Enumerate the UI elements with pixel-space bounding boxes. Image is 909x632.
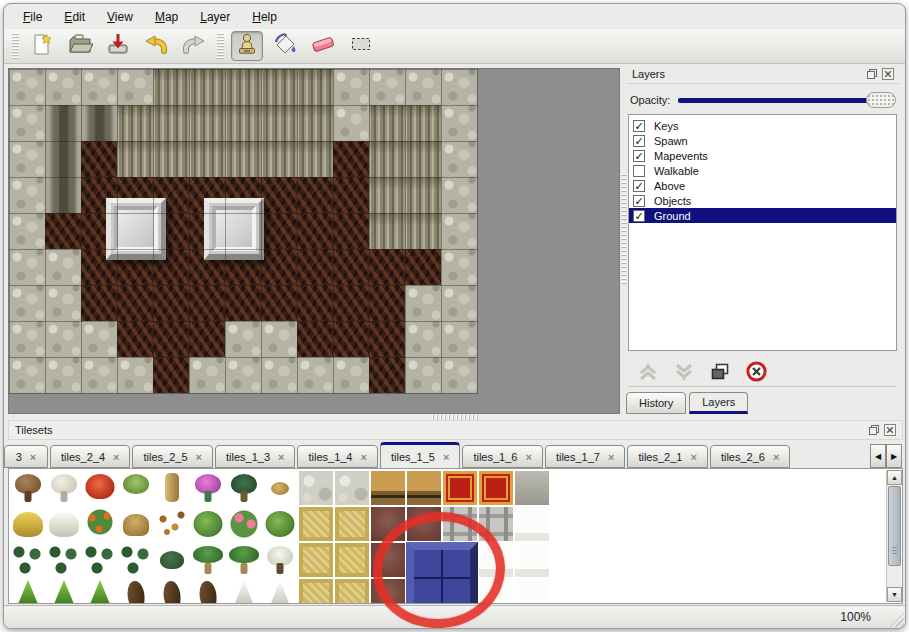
palette-tile-snow-tree[interactable] [226, 578, 262, 604]
toolbar-new-button[interactable] [26, 31, 58, 61]
map-tile-rock [441, 357, 477, 393]
layer-name: Objects [654, 195, 691, 207]
palette-tile-red-carpet[interactable] [478, 470, 514, 506]
map-tile-rock [45, 69, 81, 105]
palette-tile-tan-carpet[interactable] [334, 578, 370, 604]
map-tile-wall-face [297, 141, 333, 177]
map-tile-wall-face [189, 105, 225, 141]
tileset-tab-label: tiles_1_5 [391, 451, 435, 463]
map-tile-floor [81, 141, 117, 177]
layers-panel-titlebar: Layers [626, 64, 900, 84]
palette-tile-stone-floor[interactable] [298, 470, 334, 506]
tileset-tab-label: tiles_1_6 [473, 451, 517, 463]
map-tile-floor [297, 177, 333, 213]
layer-checkbox[interactable]: ✓ [633, 120, 645, 132]
layer-row-walkable[interactable]: Walkable [629, 163, 896, 178]
layer-name: Above [654, 180, 685, 192]
map-tile-wall-face [369, 141, 405, 177]
palette-tile-tan-carpet[interactable] [334, 542, 370, 578]
layer-name: Keys [654, 120, 678, 132]
palette-tile-metal-frame[interactable] [478, 506, 514, 542]
close-tab-icon[interactable]: × [525, 451, 531, 463]
scroll-left-icon[interactable]: ◀ [870, 444, 886, 468]
toolbar-redo-button[interactable] [178, 31, 210, 61]
map-tile-wall-face [261, 141, 297, 177]
map-tile-floor [333, 321, 369, 357]
map-tile-floor [225, 285, 261, 321]
tileset-tab-label: tiles_1_7 [556, 451, 600, 463]
palette-selected-tile[interactable] [406, 542, 478, 604]
fill-bucket-icon [272, 31, 298, 61]
palette-tile-white-tree[interactable] [46, 470, 82, 506]
toolbar [4, 29, 905, 64]
layers-panel: Layers Opacity: ✓Keys✓Spawn✓MapeventsWal… [626, 64, 900, 416]
palette-tile-lily-pad[interactable] [262, 506, 298, 542]
map-tile-floor [261, 213, 297, 249]
eraser-icon [309, 32, 337, 60]
palette-tile-leather[interactable] [370, 578, 406, 604]
palette-tile-stone-floor[interactable] [334, 470, 370, 506]
layer-buttons-row [628, 357, 897, 387]
map-tile-rock [117, 69, 153, 105]
tile-palette[interactable]: ▲ ▼ [8, 468, 903, 604]
layer-row-spawn[interactable]: ✓Spawn [629, 133, 896, 148]
opacity-slider-track[interactable] [678, 98, 894, 103]
map-tile-wall-face [405, 213, 441, 249]
menu-layer[interactable]: Layer [191, 7, 239, 27]
toolbar-undo-button[interactable] [140, 31, 172, 61]
tileset-tab-label: tiles_2_6 [721, 451, 765, 463]
map-tile-rock [9, 357, 45, 393]
palette-tile-leather[interactable] [406, 506, 442, 542]
toolbar-open-button[interactable] [64, 31, 96, 61]
map-tile-wall-face [225, 69, 261, 105]
map-pedestal-tile [106, 198, 166, 260]
map-pedestal-tile [204, 198, 264, 260]
map-tile-floor [81, 285, 117, 321]
palette-tile-snow-mound[interactable] [46, 506, 82, 542]
close-tab-icon[interactable]: × [361, 451, 367, 463]
map-tile-rock [441, 321, 477, 357]
palette-tile-white-tile[interactable] [514, 578, 550, 604]
redo-icon [181, 32, 207, 60]
map-tile-wall-face [369, 105, 405, 141]
menu-edit[interactable]: Edit [55, 7, 94, 27]
palette-tile-snow-tree[interactable] [262, 578, 298, 604]
close-tab-icon[interactable]: × [113, 451, 119, 463]
move-layer-down-button [672, 360, 696, 384]
palette-tile-red-flower[interactable] [82, 470, 118, 506]
menu-help[interactable]: Help [243, 7, 286, 27]
scrollbar-thumb[interactable] [888, 486, 901, 566]
map-tile-wall-face [225, 105, 261, 141]
close-panel-icon[interactable] [884, 424, 896, 436]
map-tile-floor [369, 249, 405, 285]
layer-list: ✓Keys✓Spawn✓MapeventsWalkable✓Above✓Obje… [628, 114, 897, 351]
map-tile-rock [45, 249, 81, 285]
palette-tile-tan-carpet[interactable] [298, 542, 334, 578]
map-tile-floor [153, 285, 189, 321]
tileset-tab-bar: 3×tiles_2_4×tiles_2_5×tiles_1_3×tiles_1_… [4, 442, 905, 468]
undo-icon [143, 32, 169, 60]
move-layer-up-button [636, 360, 660, 384]
tileset-tab-tiles_1_5[interactable]: tiles_1_5× [380, 442, 460, 468]
palette-tile-stump[interactable] [118, 470, 154, 506]
map-tile-floor [261, 177, 297, 213]
menu-view[interactable]: View [98, 7, 142, 27]
close-tab-icon[interactable]: × [30, 451, 36, 463]
map-tile-crevice [45, 105, 81, 141]
map-tile-rock [261, 357, 297, 393]
map-tile-floor [369, 285, 405, 321]
palette-tile-white-tile[interactable] [514, 506, 550, 542]
stamp-tool-icon [235, 31, 259, 61]
map-tile-rock [9, 141, 45, 177]
palette-tile-white-tile[interactable] [478, 542, 514, 578]
map-tile-rock [405, 285, 441, 321]
map-tile-floor [297, 249, 333, 285]
tab-layers[interactable]: Layers [689, 392, 748, 414]
scroll-up-icon[interactable]: ▲ [887, 470, 902, 485]
map-tile-crevice [45, 177, 81, 213]
map-tile-floor [333, 249, 369, 285]
map-tile-rock [81, 321, 117, 357]
map-tile-floor [117, 321, 153, 357]
map-tile-wall-face [297, 105, 333, 141]
scroll-down-icon[interactable]: ▼ [887, 587, 902, 602]
tileset-tab-tiles_2_1[interactable]: tiles_2_1× [627, 445, 707, 468]
toolbar-eraser-button[interactable] [307, 31, 339, 61]
map-tile-wall-face [297, 69, 333, 105]
close-tab-icon[interactable]: × [690, 451, 696, 463]
tab-scroll-arrows: ◀▶ [870, 444, 902, 468]
close-tab-icon[interactable]: × [196, 451, 202, 463]
duplicate-layer-button[interactable] [708, 360, 732, 384]
palette-tile-metal-frame[interactable] [442, 506, 478, 542]
layers-panel-title: Layers [632, 68, 665, 80]
map-tile-rock [405, 357, 441, 393]
map-tile-rock [405, 321, 441, 357]
tileset-tab-tiles_1_6[interactable]: tiles_1_6× [462, 445, 542, 468]
opacity-slider[interactable] [678, 92, 896, 108]
toolbar-stamp-button[interactable] [231, 31, 263, 61]
layer-row-ground[interactable]: ✓Ground [629, 208, 896, 223]
palette-tile-pink-bush[interactable] [190, 470, 226, 506]
palette-tile-bushes[interactable] [46, 542, 82, 578]
map-canvas[interactable] [8, 68, 620, 414]
map-tile-wall-face [153, 105, 189, 141]
map-tile-rock [9, 177, 45, 213]
tileset-tab-label: tiles_2_4 [61, 451, 105, 463]
tileset-tab-3[interactable]: 3× [4, 445, 48, 468]
map-tile-wall-face [369, 213, 405, 249]
palette-tile-twisted-trunk[interactable] [118, 578, 154, 604]
map-tile-rock [45, 357, 81, 393]
layer-row-objects[interactable]: ✓Objects [629, 193, 896, 208]
map-tile-rock [333, 69, 369, 105]
status-bar: 100% [4, 605, 905, 628]
palette-tile-red-carpet[interactable] [442, 470, 478, 506]
palette-tile-gray-stone[interactable] [514, 470, 550, 506]
map-tile-floor [333, 177, 369, 213]
map-tile-wall-face [405, 105, 441, 141]
opacity-row: Opacity: [630, 91, 896, 109]
map-tile-rock [117, 357, 153, 393]
toolbar-fill-button[interactable] [269, 31, 301, 61]
toolbar-grip[interactable] [217, 33, 224, 59]
map-tile-rock [9, 249, 45, 285]
map-tile-floor [297, 213, 333, 249]
map-tile-rock [9, 105, 45, 141]
map-tile-rock [441, 105, 477, 141]
app-window: FileEditViewMapLayerHelp Layers Opacity:… [3, 3, 906, 629]
palette-tile-hay-mound[interactable] [10, 506, 46, 542]
map-tile-rock [441, 177, 477, 213]
map-tile-floor [405, 249, 441, 285]
map-tile-floor [297, 321, 333, 357]
palette-tile-lily-pad[interactable] [190, 506, 226, 542]
palette-tile-tan-carpet[interactable] [334, 506, 370, 542]
palette-tile-twisted-trunk[interactable] [154, 578, 190, 604]
save-icon [106, 32, 130, 60]
close-tab-icon[interactable]: × [443, 451, 449, 463]
map-tile-rock [441, 141, 477, 177]
scroll-right-icon[interactable]: ▶ [886, 444, 902, 468]
tileset-tab-tiles_1_4[interactable]: tiles_1_4× [297, 445, 377, 468]
toolbar-select-button[interactable] [345, 31, 377, 61]
toolbar-grip[interactable] [12, 33, 19, 59]
layer-name: Spawn [654, 135, 688, 147]
map-tile-floor [153, 321, 189, 357]
palette-tile-leather[interactable] [370, 542, 406, 578]
map-tile-wall-face [189, 69, 225, 105]
tileset-tab-label: tiles_2_5 [143, 451, 187, 463]
palette-tile-white-tile[interactable] [478, 578, 514, 604]
map-tile-wall-face [117, 141, 153, 177]
tileset-tab-tiles_1_3[interactable]: tiles_1_3× [215, 445, 295, 468]
float-panel-icon[interactable] [868, 424, 880, 436]
palette-tile-leather[interactable] [370, 506, 406, 542]
layer-name: Walkable [654, 165, 699, 177]
layer-name: Mapevents [654, 150, 708, 162]
palette-tile-leaves[interactable] [154, 506, 190, 542]
map-tile-floor [117, 285, 153, 321]
map-tile-rock [9, 213, 45, 249]
tab-history[interactable]: History [626, 392, 686, 414]
close-tab-icon[interactable]: × [773, 451, 779, 463]
tileset-tab-label: tiles_1_3 [226, 451, 270, 463]
map-tile-wall-face [261, 69, 297, 105]
new-file-icon [30, 32, 54, 60]
palette-tile-bushes[interactable] [82, 542, 118, 578]
menu-file[interactable]: File [14, 7, 51, 27]
tilesets-panel-title: Tilesets [15, 424, 53, 436]
layer-row-keys[interactable]: ✓Keys [629, 118, 896, 133]
map-tile-wall-face [117, 105, 153, 141]
map-tile-floor [297, 285, 333, 321]
map-tile-floor [369, 357, 405, 393]
map-tile-rock [45, 285, 81, 321]
map-tile-rock [9, 321, 45, 357]
tileset-tab-tiles_2_6[interactable]: tiles_2_6× [710, 445, 790, 468]
layer-name: Ground [654, 210, 691, 222]
palette-tile-bushes[interactable] [118, 542, 154, 578]
palette-tile-dark-palm[interactable] [226, 470, 262, 506]
map-tile-floor [189, 285, 225, 321]
map-tile-crevice [45, 141, 81, 177]
map-tile-crevice [81, 105, 117, 141]
palette-tile-bushes[interactable] [10, 542, 46, 578]
map-tile-floor [369, 321, 405, 357]
map-tile-rock [369, 69, 405, 105]
menu-bar: FileEditViewMapLayerHelp [4, 4, 905, 29]
tileset-tab-tiles_2_4[interactable]: tiles_2_4× [50, 445, 130, 468]
map-tile-rock [441, 249, 477, 285]
map-tile-rock [441, 213, 477, 249]
layer-row-above[interactable]: ✓Above [629, 178, 896, 193]
palette-tile-wood-counter[interactable] [370, 470, 406, 506]
layer-checkbox[interactable]: ✓ [633, 210, 645, 222]
layer-row-mapevents[interactable]: ✓Mapevents [629, 148, 896, 163]
palette-tile-white-tile[interactable] [514, 542, 550, 578]
close-tab-icon[interactable]: × [278, 451, 284, 463]
toolbar-save-button[interactable] [102, 31, 134, 61]
panel-tabs: HistoryLayers [626, 392, 751, 416]
palette-tile-palm[interactable] [190, 542, 226, 578]
map-tile-wall-face [189, 141, 225, 177]
map-tile-rock [405, 69, 441, 105]
map-tile-wall-face [261, 105, 297, 141]
layer-checkbox[interactable]: ✓ [633, 180, 645, 192]
map-tile-rock [441, 69, 477, 105]
map-tile-rock [333, 105, 369, 141]
map-tile-rock [261, 321, 297, 357]
map-tile-wall-face [369, 177, 405, 213]
tileset-tab-tiles_1_7[interactable]: tiles_1_7× [545, 445, 625, 468]
palette-tile-trunk[interactable] [154, 470, 190, 506]
map-tile-floor [45, 213, 81, 249]
resize-grip[interactable] [886, 609, 904, 627]
tileset-tab-label: tiles_1_4 [308, 451, 352, 463]
palette-tile-sprout[interactable] [262, 470, 298, 506]
layer-checkbox[interactable]: ✓ [633, 150, 645, 162]
float-panel-icon[interactable] [866, 68, 878, 80]
map-tile-rock [81, 69, 117, 105]
map-tile-floor [153, 357, 189, 393]
tileset-tab-label: 3 [16, 451, 22, 463]
palette-tile-twisted-trunk[interactable] [190, 578, 226, 604]
select-rect-icon [348, 32, 374, 60]
palette-tile-bush[interactable] [154, 542, 190, 578]
map-tile-rock [45, 321, 81, 357]
palette-tile-dry-grass[interactable] [118, 506, 154, 542]
tileset-tab-tiles_2_5[interactable]: tiles_2_5× [132, 445, 212, 468]
map-tile-rock [333, 357, 369, 393]
opacity-slider-handle[interactable] [866, 92, 896, 108]
map-tile-floor [333, 213, 369, 249]
tileset-tab-label: tiles_2_1 [638, 451, 682, 463]
palette-scrollbar[interactable]: ▲ ▼ [886, 470, 901, 602]
palette-tile-dead-tree[interactable] [10, 470, 46, 506]
map-tile-rock [297, 357, 333, 393]
map-tile-wall-face [405, 141, 441, 177]
tilesets-panel: Tilesets 3×tiles_2_4×tiles_2_5×tiles_1_3… [4, 418, 905, 606]
palette-tile-cone-tree[interactable] [10, 578, 46, 604]
palette-tile-tan-carpet[interactable] [298, 578, 334, 604]
opacity-label: Opacity: [630, 94, 670, 106]
map-tile-wall-face [153, 69, 189, 105]
menu-map[interactable]: Map [146, 7, 187, 27]
palette-tile-cone-tree[interactable] [82, 578, 118, 604]
open-file-icon [67, 32, 93, 60]
close-panel-icon[interactable] [882, 68, 894, 80]
map-tile-floor [333, 285, 369, 321]
map-tile-rock [225, 321, 261, 357]
zoom-level: 100% [840, 610, 871, 624]
map-tile-rock [81, 357, 117, 393]
palette-tile-snow-palm[interactable] [262, 542, 298, 578]
map-tile-rock [225, 357, 261, 393]
map-tile-floor [333, 141, 369, 177]
layer-checkbox[interactable]: ✓ [633, 135, 645, 147]
palette-tile-wood-counter[interactable] [406, 470, 442, 506]
palette-tile-orange-flowers[interactable] [82, 506, 118, 542]
map-tile-rock [9, 69, 45, 105]
palette-tile-palm[interactable] [226, 542, 262, 578]
map-tile-rock [9, 285, 45, 321]
map-tile-floor [261, 249, 297, 285]
map-tile-wall-face [405, 177, 441, 213]
tilesets-panel-titlebar: Tilesets [8, 420, 903, 440]
palette-tile-pink-lily[interactable] [226, 506, 262, 542]
layer-checkbox[interactable] [633, 165, 645, 177]
close-tab-icon[interactable]: × [608, 451, 614, 463]
map-tile-wall-face [225, 141, 261, 177]
map-tile-rock [189, 357, 225, 393]
map-tile-floor [189, 321, 225, 357]
map-tile-floor [261, 285, 297, 321]
layer-checkbox[interactable]: ✓ [633, 195, 645, 207]
palette-tile-tan-carpet[interactable] [298, 506, 334, 542]
delete-layer-button[interactable] [744, 360, 768, 384]
map-tile-rock [441, 285, 477, 321]
map-tile-wall-face [153, 141, 189, 177]
palette-tile-cone-tree[interactable] [46, 578, 82, 604]
